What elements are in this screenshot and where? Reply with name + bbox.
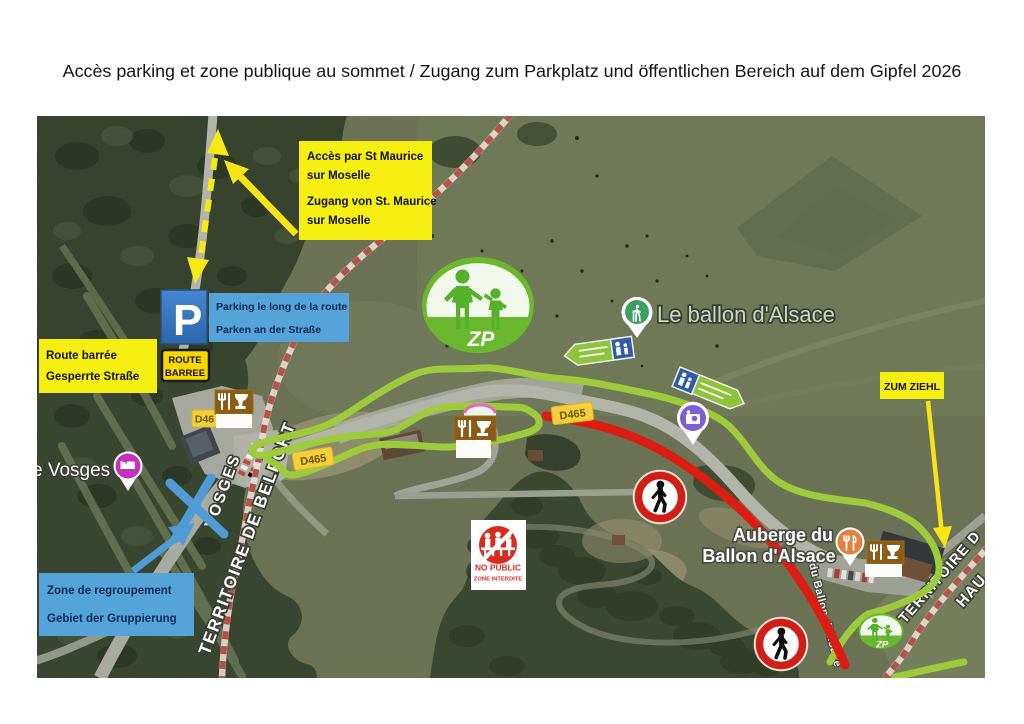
- svg-text:ZP: ZP: [875, 640, 889, 650]
- svg-text:ROUTE: ROUTE: [168, 355, 201, 366]
- svg-text:ZUM ZIEHL: ZUM ZIEHL: [884, 381, 941, 393]
- svg-text:Route barrée: Route barrée: [46, 350, 117, 362]
- svg-text:D46: D46: [195, 414, 214, 426]
- svg-text:e Vosges: e Vosges: [37, 460, 110, 481]
- svg-text:Ballon d'Alsace: Ballon d'Alsace: [702, 546, 835, 566]
- svg-text:ZP: ZP: [467, 328, 496, 351]
- svg-text:Le ballon d'Alsace: Le ballon d'Alsace: [657, 302, 835, 327]
- svg-text:NO PUBLIC: NO PUBLIC: [475, 563, 521, 573]
- svg-text:Auberge du: Auberge du: [733, 525, 833, 545]
- svg-text:Gebiet der Gruppierung: Gebiet der Gruppierung: [47, 613, 177, 625]
- svg-text:sur Moselle: sur Moselle: [307, 170, 370, 182]
- svg-text:Zugang von St. Maurice: Zugang von St. Maurice: [307, 196, 437, 208]
- svg-text:Accès par St Maurice: Accès par St Maurice: [307, 151, 423, 163]
- svg-text:BARREE: BARREE: [165, 368, 205, 379]
- svg-text:Zone de regroupement: Zone de regroupement: [47, 585, 172, 597]
- svg-text:P: P: [173, 296, 202, 345]
- svg-text:sur Moselle: sur Moselle: [307, 215, 370, 227]
- svg-text:ZONE INTERDITE: ZONE INTERDITE: [474, 577, 522, 583]
- svg-text:Parken an der Straße: Parken an der Straße: [216, 324, 321, 336]
- svg-text:Gesperrte Straße: Gesperrte Straße: [46, 371, 139, 383]
- svg-text:Parking le long de la route: Parking le long de la route: [216, 301, 347, 313]
